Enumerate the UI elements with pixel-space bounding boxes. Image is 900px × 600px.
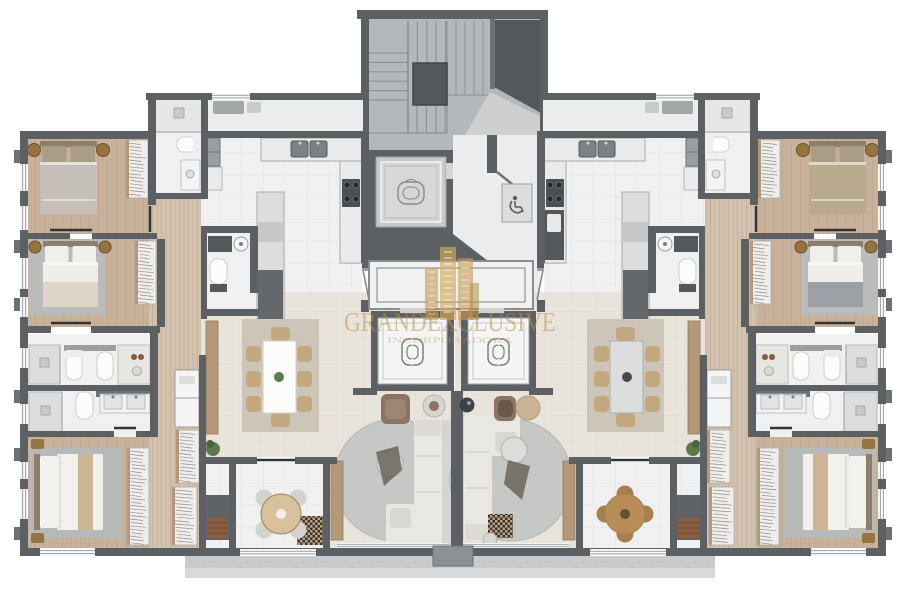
svg-text:INCORPORADORA: INCORPORADORA bbox=[387, 336, 513, 345]
svg-text:GRANDEXCLUSIVE: GRANDEXCLUSIVE bbox=[344, 307, 556, 337]
